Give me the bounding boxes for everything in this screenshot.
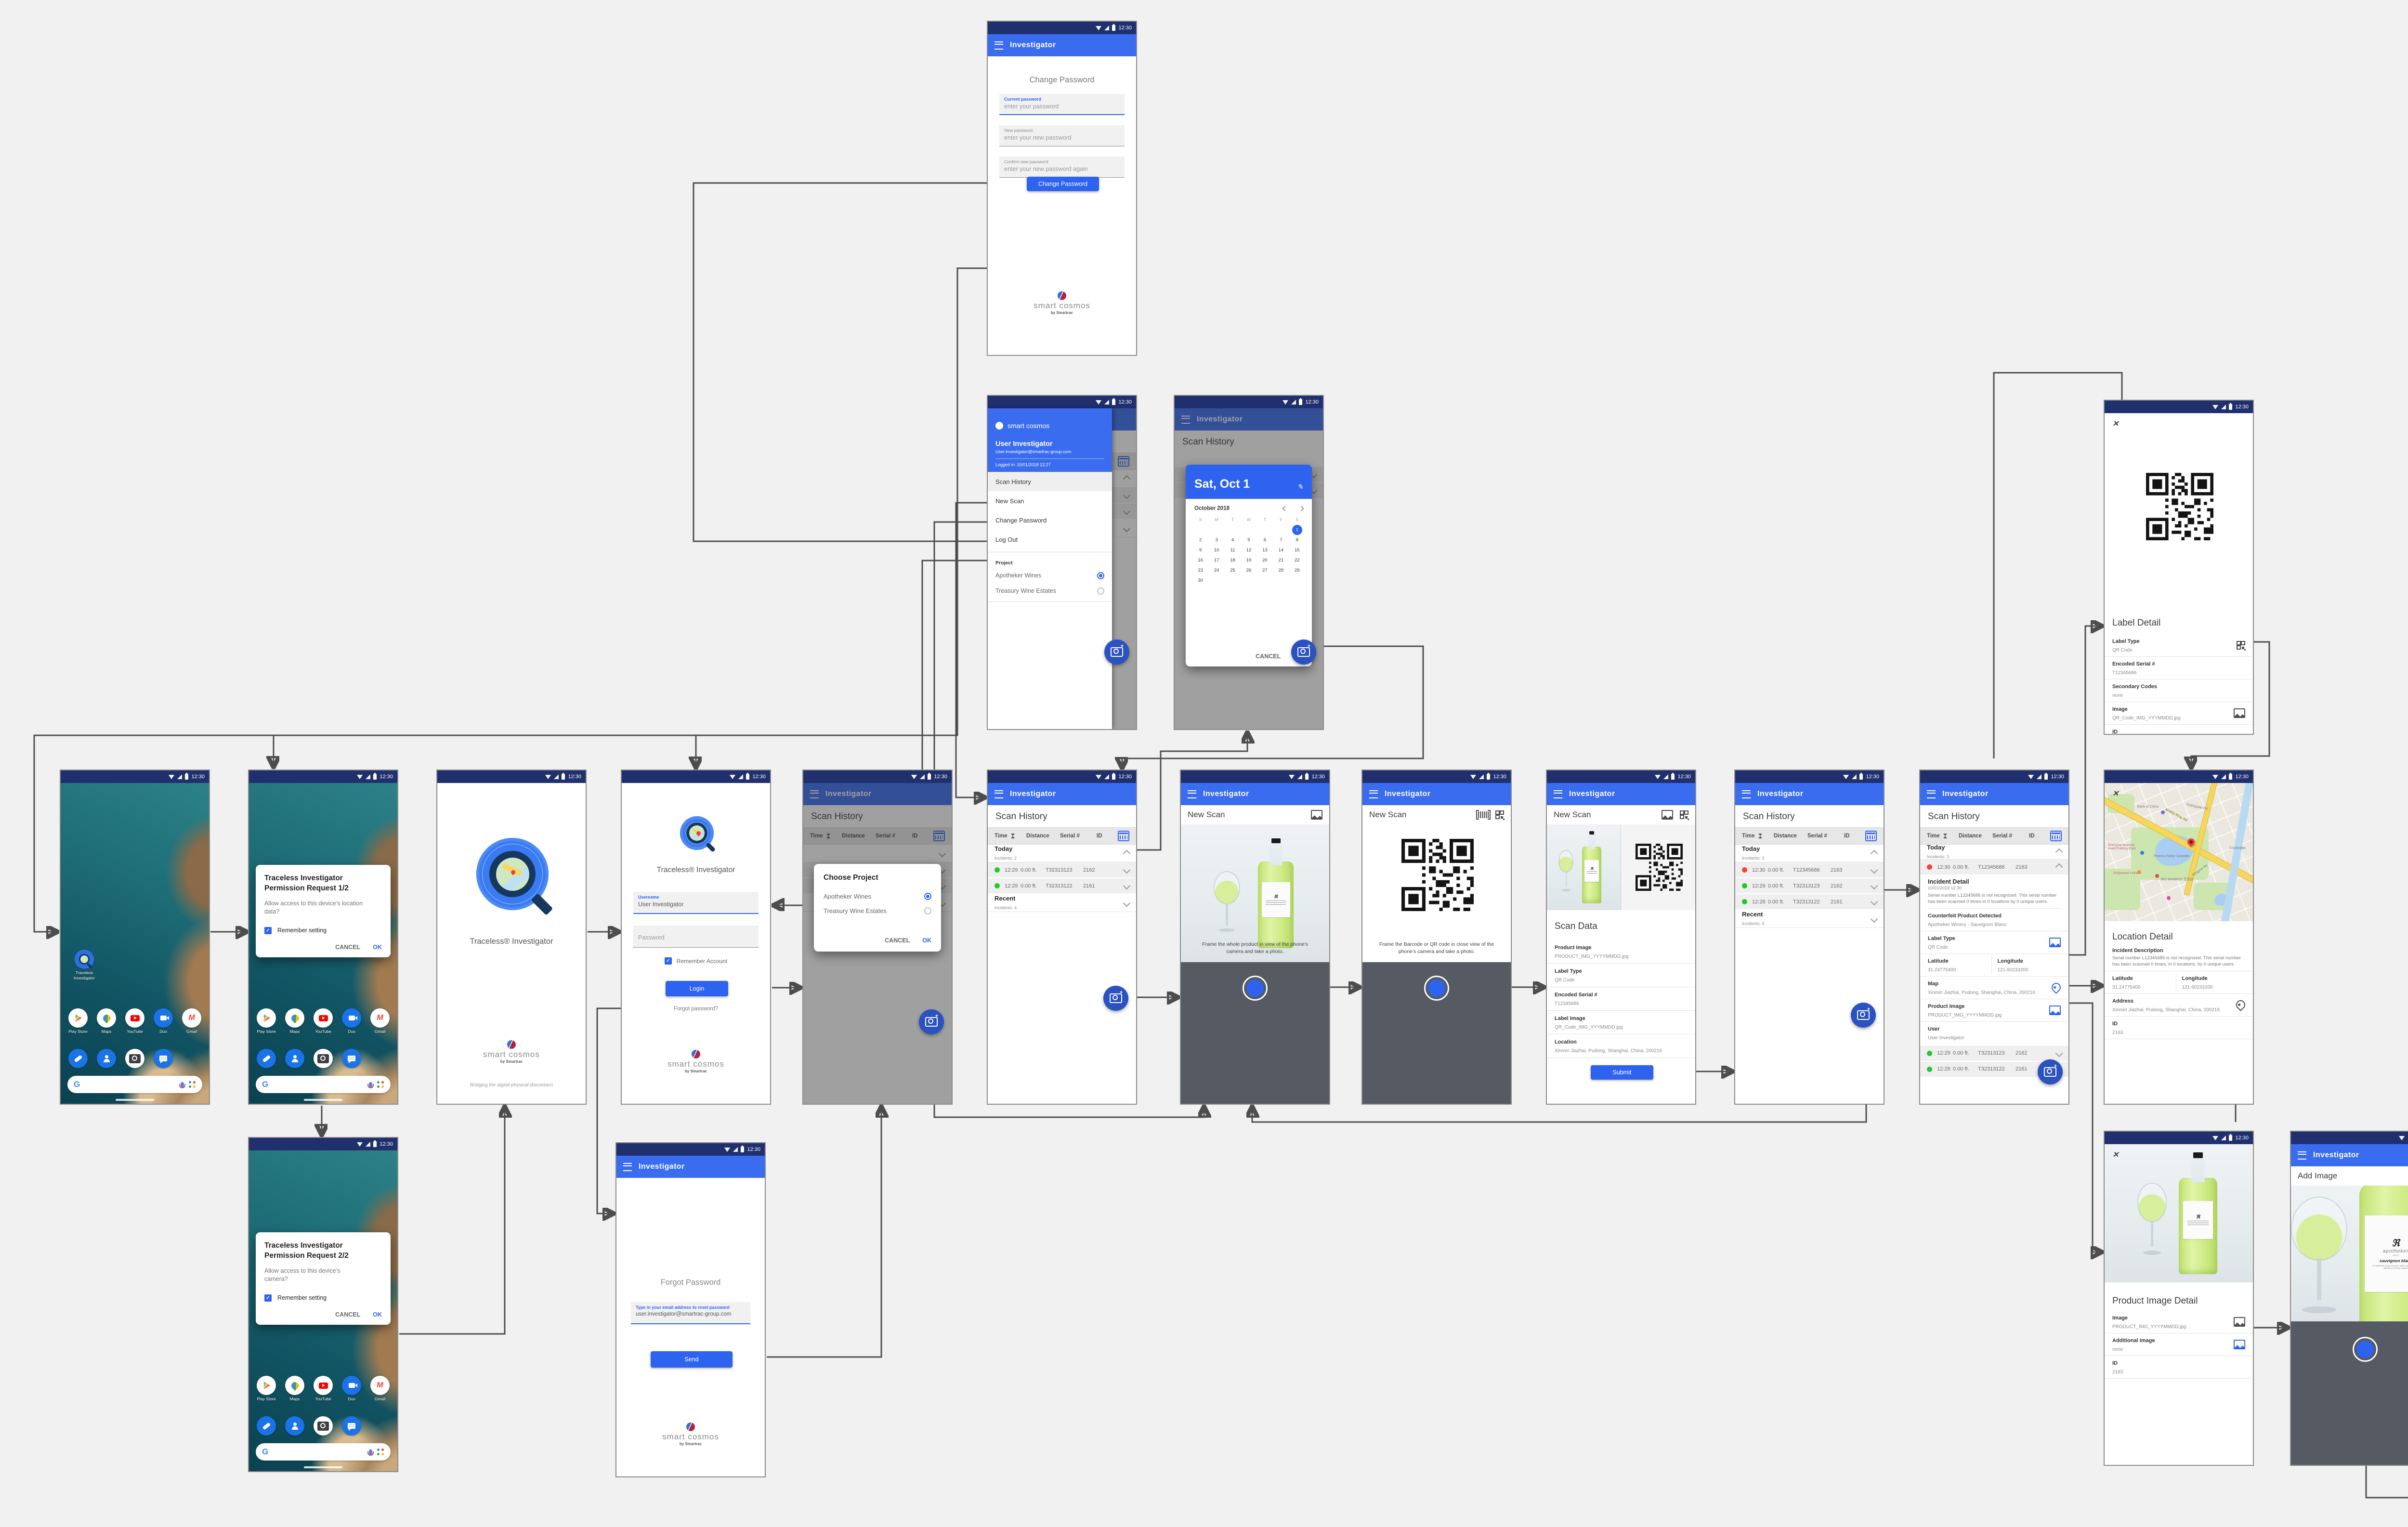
calendar-day[interactable]: 9 [1195,545,1205,555]
smart-cosmos-dot-icon [995,422,1003,430]
encoded-serial-row: Encoded Serial #T12345686 [2105,657,2253,679]
login-button[interactable]: Login [666,981,728,996]
chevron-down-icon[interactable] [1123,866,1131,874]
home-indicator [304,1466,342,1468]
calendar-day[interactable]: 25 [1228,565,1238,575]
dock-camera[interactable] [311,1049,336,1068]
screen-product-image-detail-1: 12:30 ℜ Product Image Detail ImagePRODUC… [2104,1131,2254,1466]
dow-label: F [1273,514,1289,525]
app-bar: Investigator [1735,783,1884,805]
calendar-day[interactable]: 15 [1292,545,1302,555]
new-password-field[interactable]: New password enter your new password [999,125,1125,146]
status-bar: 12:30 [1175,396,1323,408]
status-bar: 12:30 [1547,770,1695,783]
field-row: Encoded Serial #T12345686 [1547,987,1695,1011]
status-dot [1742,867,1747,873]
menu-icon[interactable] [1927,790,1936,798]
new-scan-fab[interactable] [1103,986,1128,1011]
radio-icon[interactable] [924,907,931,914]
screen-permission-1: 12:30 Play Store Maps YouTube Duo Gmail … [248,770,398,1105]
group-recent[interactable]: RecentIncidents: 4 [1735,910,1884,928]
project-option[interactable]: Treasury Wine Estates [824,903,931,918]
calendar-day[interactable]: 16 [1195,555,1205,565]
calendar-day[interactable]: 8 [1292,535,1302,545]
additional-image-row: Additional Imagenone + [2105,1333,2253,1356]
view-map-icon[interactable] [2050,981,2063,994]
chevron-down-icon[interactable] [1123,899,1131,907]
calendar-day[interactable]: 1 [1292,525,1302,535]
menu-icon[interactable] [623,1163,632,1171]
radio-icon[interactable] [1097,572,1104,579]
drawer-item-new-scan[interactable]: New Scan [988,491,1112,510]
chevron-up-icon[interactable] [2055,848,2063,856]
checkbox-checked-icon[interactable] [264,927,272,934]
chevron-down-icon[interactable] [2055,1049,2063,1057]
camera-controls-bar [1362,962,1511,1104]
calendar-day[interactable] [1243,525,1254,535]
status-dot [1927,1067,1932,1072]
calendar-day[interactable]: 21 [1276,555,1286,565]
close-icon[interactable] [2112,420,2121,429]
project-section-label: Project [988,555,1112,568]
checkbox-checked-icon[interactable] [264,1294,272,1302]
calendar-icon[interactable] [1865,831,1877,841]
traceless-investigator-logo [476,838,549,910]
calendar-day[interactable]: 3 [1212,535,1222,545]
view-product-image-icon[interactable] [2049,1005,2061,1015]
dock-phone[interactable] [65,1049,91,1068]
project-option[interactable]: Apotheker Wines [988,568,1112,583]
dock-chrome[interactable] [179,1049,204,1068]
calendar-day[interactable]: 27 [1260,565,1270,575]
cancel-button[interactable]: CANCEL [885,937,910,944]
dock-chrome[interactable] [367,1049,393,1068]
project-option[interactable]: Treasury Wine Estates [988,583,1112,599]
traceless-investigator-logo [680,816,714,850]
image-icon[interactable] [2234,1317,2245,1327]
calendar-day[interactable] [1228,575,1238,586]
calendar-day[interactable]: 24 [1212,565,1222,575]
app-gmail[interactable]: Gmail [367,1376,393,1401]
calendar-day[interactable]: 4 [1228,535,1238,545]
home-app-row: Play Store Maps YouTube Duo Gmail [65,1008,204,1034]
calendar-day[interactable] [1243,575,1254,586]
calendar-day[interactable]: 13 [1260,545,1270,555]
menu-icon[interactable] [1369,790,1378,798]
app-youtube[interactable]: YouTube [122,1008,147,1034]
google-search-bar[interactable] [256,1443,391,1461]
page-title: Product Image Detail [2105,1290,2205,1312]
status-dot [995,883,1000,888]
calendar-day[interactable]: 17 [1212,555,1222,565]
calendar-day[interactable] [1276,525,1286,535]
smart-cosmos-logo: smart cosmos by Smartrac [437,1040,586,1064]
view-label-image-icon[interactable] [2049,938,2061,947]
calendar-day[interactable]: 28 [1276,565,1286,575]
status-time: 12:30 [191,774,205,780]
status-bar: 12:30 [2105,770,2253,783]
send-button[interactable]: Send [651,1351,733,1368]
smart-cosmos-logo: smart cosmos by Smartrac [988,291,1136,315]
new-scan-fab [919,1009,944,1034]
page-title: New Scan [1554,810,1591,820]
shutter-button[interactable] [1243,976,1268,1001]
radio-icon[interactable] [924,893,931,900]
signal-icon [177,774,182,779]
google-lens-icon[interactable] [189,1081,196,1088]
camera-plus-icon [2044,1067,2056,1077]
calendar-day[interactable]: 14 [1276,545,1286,555]
scan-row[interactable]: 12:29 0.00 ft. T32313123 2162 [1920,1046,2068,1061]
page-title: Forgot Password [616,1278,765,1287]
app-maps[interactable]: Maps [282,1376,307,1401]
app-maps[interactable]: Maps [94,1008,119,1034]
password-field[interactable]: Password [633,926,759,948]
status-dot [1927,864,1932,870]
wifi-icon [357,775,363,779]
calendar-day[interactable] [1228,525,1238,535]
chevron-down-icon[interactable] [1871,882,1878,890]
google-lens-icon[interactable] [377,1081,384,1088]
app-play-store[interactable]: Play Store [254,1376,279,1401]
flow-canvas: 12:30 Traceless Investigator Play Store … [0,0,2408,1527]
menu-icon[interactable] [995,790,1003,798]
chevron-up-icon[interactable] [2055,863,2063,871]
status-bar: 12:30 [988,22,1136,34]
screen-location-detail: 12:30 Bank of China Shanghai Marriott Ho… [2104,770,2254,1105]
screen-scan-data: 12:30 Investigator New Scan ℜ Scan Data … [1546,770,1696,1105]
group-today[interactable]: TodayIncidents: 3 [1735,845,1884,862]
chevron-up-icon[interactable] [1123,849,1131,857]
app-icon-traceless-investigator[interactable]: Traceless Investigator [67,950,101,980]
chevron-down-icon[interactable] [1871,898,1878,906]
screen-scan-history-detail: 12:30 Investigator Scan History Time Dis… [1919,770,2069,1105]
dock-camera[interactable] [122,1049,147,1068]
dialog-title: Traceless Investigator Permission Reques… [264,1241,364,1261]
status-bar: 12:30 [1920,770,2068,783]
add-image-icon[interactable]: + [2234,1340,2245,1349]
app-icon-label: Traceless Investigator [67,970,101,980]
home-dock [254,1049,393,1068]
youtube-icon [319,1015,328,1021]
dow-label: T [1225,514,1241,525]
checkbox-checked-icon[interactable] [665,957,672,965]
ok-button[interactable]: OK [373,1311,382,1318]
app-youtube[interactable]: YouTube [311,1008,336,1034]
coordinates-row: Latitude31.24775400 Longitude121.6023320… [2105,971,2253,994]
gmail-icon [377,1014,383,1022]
ok-button[interactable]: OK [373,944,382,951]
product-photo-thumbnail[interactable]: ℜ [1547,824,1621,910]
dock-contacts[interactable] [282,1049,307,1068]
calendar-day[interactable]: 19 [1243,555,1254,565]
remember-account-row[interactable]: Remember Account [622,957,770,965]
calendar-day[interactable]: 6 [1260,535,1270,545]
drawer-item-scan-history[interactable]: Scan History [988,472,1112,491]
map-pin-icon[interactable] [2234,998,2247,1011]
status-bar: 12:30 [249,770,397,783]
wine-bottle: ℜ [1258,838,1294,949]
chevron-down-icon[interactable] [1871,866,1878,874]
page-title: New Scan [1188,810,1225,820]
scan-row[interactable]: 12:29 0.00 ft. T32313123 2162 [988,862,1136,877]
calendar-icon[interactable] [2050,831,2062,841]
app-bar: Investigator [1920,783,2068,805]
status-bar: 12:30 [988,770,1136,783]
page-title: Scan History [1920,805,2068,827]
map-row: MapXinmin Jiazhai, Pudong, Shanghai, Chi… [1920,977,2068,999]
wine-glass [1214,871,1240,932]
permission-dialog: Traceless Investigator Permission Reques… [256,1232,391,1325]
camera-controls-bar [1181,962,1329,1104]
calendar-day[interactable]: 22 [1292,555,1302,565]
calendar-day[interactable]: 26 [1243,565,1254,575]
app-play-store[interactable]: Play Store [65,1008,91,1034]
app-gmail[interactable]: Gmail [179,1008,204,1034]
app-bar: Investigator [988,783,1136,805]
map-view[interactable]: Bank of China Shanghai Marriott Hotel Pu… [2105,783,2253,921]
app-maps[interactable]: Maps [282,1008,307,1034]
username-field[interactable]: Username User Investigator [633,892,759,914]
calendar-day[interactable]: 12 [1243,545,1254,555]
screen-forgot-password: 12:30 Investigator Forgot Password Type … [615,1142,766,1477]
app-bar: Investigator [1547,783,1695,805]
google-search-bar[interactable] [256,1076,391,1093]
permission-dialog: Traceless Investigator Permission Reques… [256,865,391,957]
screen-nav-drawer: 12:30 Investigator Scan History TimeDist… [987,395,1137,730]
group-today[interactable]: TodayIncidents: 3 [1920,845,2068,860]
ok-button[interactable]: OK [922,937,931,944]
calendar-day[interactable]: 18 [1228,555,1238,565]
camera-viewfinder-label: Frame the Barcode or QR code in close vi… [1362,824,1511,962]
remember-setting-row[interactable]: Remember setting [264,927,382,934]
group-today[interactable]: TodayIncidents: 2 [988,845,1136,862]
field-row: Product ImagePRODUCT_IMG_YYYYMMDD.jpg [1547,940,1695,964]
field-row: LocationXinmin Jiazhai, Pudong, Shanghai… [1547,1034,1695,1058]
section-title: Scan Data [1547,915,1605,937]
confirm-password-field[interactable]: Confirm new password enter your new pass… [999,157,1125,178]
calendar-day[interactable] [1260,525,1270,535]
shutter-button[interactable] [2353,1337,2378,1362]
calendar-day[interactable]: 10 [1212,545,1222,555]
calendar-day[interactable]: 2 [1195,535,1205,545]
tagline: Bridging the digital-physical disconnect [437,1083,586,1088]
remember-setting-row[interactable]: Remember setting [264,1294,382,1302]
dock-contacts[interactable] [282,1416,307,1436]
cancel-button[interactable]: CANCEL [335,1311,360,1318]
page-title: Add Image [2298,1171,2337,1181]
calendar-icon[interactable] [1118,831,1129,841]
dock-phone[interactable] [254,1416,279,1436]
camera-plus-icon [1110,993,1122,1003]
scan-row[interactable]: 12:29 0.00 ft. T32313123 2162 [1735,878,1884,893]
next-month-icon[interactable] [1298,506,1304,511]
incident-description-row: Incident Description Serial number L1234… [2105,946,2253,971]
qr-code-icon[interactable] [2237,641,2245,650]
dock-phone[interactable] [254,1049,279,1068]
home-app-row: Play Store Maps YouTube Duo Gmail [254,1008,393,1034]
dialog-body: Allow access to this device’s location d… [264,900,364,916]
calendar-day[interactable]: 5 [1243,535,1254,545]
app-youtube[interactable]: YouTube [311,1376,336,1401]
id-row: ID2163 [2105,725,2253,735]
submit-button[interactable]: Submit [1591,1065,1653,1080]
page-title: New Scan [1369,810,1406,820]
menu-icon[interactable] [1188,790,1196,798]
qr-code-icon[interactable] [1495,810,1504,819]
menu-icon[interactable] [1554,790,1562,798]
dock-messages[interactable] [339,1049,364,1068]
menu-icon[interactable] [995,41,1003,50]
mic-icon[interactable] [369,1082,372,1087]
change-password-button[interactable]: Change Password [1027,177,1099,191]
menu-icon[interactable] [2298,1151,2306,1160]
menu-icon[interactable] [1742,790,1751,798]
label-type-row: Label TypeQR Code [2105,634,2253,657]
app-gmail[interactable]: Gmail [367,1008,393,1034]
id-row: ID2163 [2105,1356,2253,1379]
app-duo[interactable]: Duo [339,1008,364,1034]
calendar-day[interactable]: 11 [1228,545,1238,555]
barcode-icon[interactable] [1478,811,1489,818]
dock-messages[interactable] [339,1416,364,1436]
calendar-day[interactable] [1212,525,1222,535]
chevron-up-icon[interactable] [1871,849,1878,857]
drawer-item-change-password[interactable]: Change Password [988,510,1112,530]
app-duo[interactable]: Duo [151,1008,176,1034]
drawer-user: User Investigator [995,440,1104,448]
scan-row[interactable]: 12:30 0.00 ft. T12345686 2163 [1735,862,1884,877]
calendar-day[interactable]: 30 [1195,575,1205,586]
new-scan-fab[interactable] [1851,1003,1876,1028]
project-option[interactable]: Apotheker Wines [824,889,931,903]
dock-camera[interactable] [311,1416,336,1436]
qr-code [1401,839,1474,911]
image-row: ImagePRODUCT_IMG_YYYYMMDD.jpg [2105,1311,2253,1333]
calendar-day[interactable] [1260,575,1270,586]
calendar-day[interactable]: 23 [1195,565,1205,575]
page-title: Label Detail [2105,612,2168,634]
dialog-title: Traceless Investigator Permission Reques… [264,874,364,894]
dow-label: M [1208,514,1224,525]
app-play-store[interactable]: Play Store [254,1008,279,1034]
counterfeit-row: Counterfeit Product DetectedApotheker Wi… [1920,909,2068,931]
drawer-header: smart cosmos User Investigator User.Inve… [988,408,1112,472]
column-header: Time Distance Serial # ID [1920,827,2068,845]
scan-row-expanded[interactable]: 12:30 0.00 ft. T12345686 2163 [1920,860,2068,874]
gallery-icon[interactable] [1662,810,1673,820]
home-indicator [116,1099,154,1101]
google-search-bar[interactable] [67,1076,202,1093]
status-bar: 12:30 [249,1138,397,1150]
close-icon[interactable] [2112,790,2121,798]
calendar-day[interactable] [1276,575,1286,586]
calendar-day[interactable]: 20 [1260,555,1270,565]
dock-messages[interactable] [151,1049,176,1068]
traceless-investigator-icon [75,950,94,969]
page-title: Change Password [988,76,1136,85]
address-row: AddressXinmin Jiazhai, Pudong, Shanghai,… [2105,994,2253,1017]
new-scan-fab[interactable] [2038,1059,2063,1084]
product-photo: ℜ [2105,1144,2253,1282]
dock-contacts[interactable] [94,1049,119,1068]
scan-row[interactable]: 12:29 0.00 ft. T32313122 2161 [988,878,1136,893]
calendar-day[interactable] [1212,575,1222,586]
cancel-button[interactable]: CANCEL [1256,653,1281,660]
current-password-field[interactable]: Current password enter your password [999,94,1125,115]
screen-splash: 12:30 Traceless® Investigator smart cosm… [436,770,587,1105]
screen-scan-history-1: 12:30 Investigator Scan History Time Dis… [987,770,1137,1105]
calendar-day[interactable] [1195,525,1205,535]
qr-code-icon[interactable] [1680,810,1688,819]
cancel-button[interactable]: CANCEL [335,944,360,951]
status-bar: 12:30 [1181,770,1329,783]
image-row: ImageQR_Code_IMG_YYYMMDD.jpg [2105,702,2253,725]
page-title: Scan History [988,805,1136,827]
incident-detail: Incident Detail 10/01/2018 12:30 Serial … [1920,875,2068,909]
dock-chrome[interactable] [367,1416,393,1436]
edit-date-icon[interactable] [1297,483,1303,491]
camera-icon [129,1054,141,1063]
prev-month-icon[interactable] [1282,506,1287,511]
maps-icon [101,1013,111,1023]
messages-icon [159,1056,167,1061]
phone-icon [74,1055,82,1062]
shutter-button[interactable] [1424,976,1449,1001]
status-bar: 12:30 [2105,401,2253,413]
label-photo-thumbnail[interactable] [1621,824,1695,910]
status-bar: 12:30 [988,396,1136,408]
contacts-icon [103,1055,110,1062]
page-title: Scan History [1735,805,1884,827]
chevron-down-icon[interactable] [1871,915,1878,923]
calendar-day[interactable]: 29 [1292,565,1302,575]
dow-label: T [1257,514,1273,525]
battery-icon [373,774,377,780]
scan-row[interactable]: 12:28 0.00 ft. T32313122 2161 [1735,894,1884,909]
close-icon[interactable] [2112,1151,2121,1160]
status-bar: 12:30 [616,1143,765,1156]
calendar-day[interactable]: 7 [1276,535,1286,545]
smart-cosmos-logo: smart cosmos by Smartrac [622,1050,770,1073]
field-row: Label TypeQR Code [1547,964,1695,987]
camera-hint: Frame the whole product in view of the p… [1196,941,1314,955]
app-bar: Investigator [1362,783,1511,805]
incident-date: 10/01/2018 12:30 [1928,886,2061,890]
camera-hint: Frame the Barcode or QR code in close vi… [1377,941,1496,955]
email-field[interactable]: Type in your email address to reset pass… [631,1302,750,1324]
mic-icon[interactable] [181,1082,184,1087]
secondary-codes-row: Secondary Codesnone [2105,679,2253,702]
nav-drawer-panel: smart cosmos User Investigator User.Inve… [988,408,1112,729]
camera-viewfinder-product: ℜ Frame the whole product in view of the… [1181,824,1329,962]
image-icon[interactable] [2234,708,2245,718]
month-label: October 2018 [1194,506,1230,511]
selected-date: Sat, Oct 1 [1194,477,1250,491]
home-dock [65,1049,204,1068]
battery-icon [185,774,188,780]
app-duo[interactable]: Duo [339,1376,364,1401]
wallpaper: Traceless Investigator Play Store Maps Y… [61,783,209,1104]
gallery-icon[interactable] [1311,810,1322,820]
radio-icon[interactable] [1097,587,1104,595]
status-dot [1742,883,1747,888]
group-recent[interactable]: RecentIncidents: 4 [988,894,1136,912]
forgot-password-link[interactable]: Forgot password? [622,1006,770,1012]
chevron-down-icon[interactable] [1123,882,1131,890]
home-app-row: Play Store Maps YouTube Duo Gmail [254,1376,393,1401]
drawer-item-log-out[interactable]: Log Out [988,530,1112,549]
